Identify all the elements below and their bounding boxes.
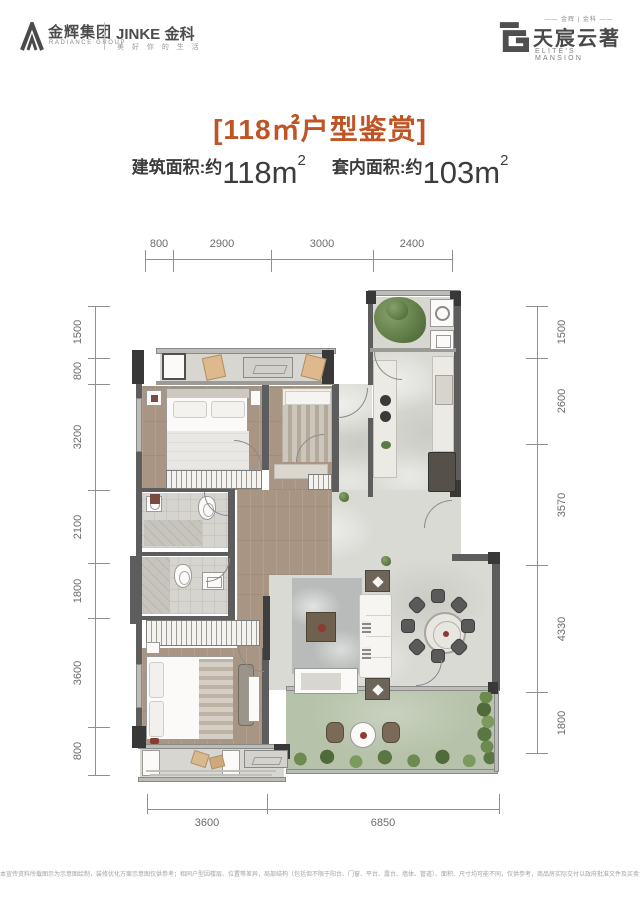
dim-right-2600: 2600 <box>556 389 568 413</box>
dim-left-3600: 3600 <box>72 661 84 685</box>
shower-area <box>144 520 202 546</box>
wall <box>130 556 136 624</box>
side-table <box>365 570 390 592</box>
column <box>132 350 144 384</box>
dim-left-1800: 1800 <box>72 579 84 603</box>
wardrobe <box>308 474 332 490</box>
area-line: 建筑面积:约118m2套内面积:约103m2 <box>0 152 640 191</box>
page-title: [118㎡户型鉴赏] <box>0 108 640 148</box>
plan-notch-mask <box>461 490 521 556</box>
tv <box>263 596 270 660</box>
estate-name-en: ELITE'S MANSION <box>535 48 625 62</box>
hallway-floor <box>237 490 332 575</box>
wall <box>262 384 269 470</box>
poster: 金辉集团 RADIANCE GROUP JINKE 金科 美 好 你 的 生 活… <box>0 0 640 920</box>
dim-top-3000: 3000 <box>310 238 334 250</box>
step-line <box>146 770 276 772</box>
kitchen-counter-right <box>432 356 454 452</box>
shower-area <box>142 557 170 614</box>
nightstand <box>250 390 261 406</box>
jinke-logo: JINKE 金科 <box>116 23 195 44</box>
inner-area-value: 103m <box>423 155 501 190</box>
pillow <box>362 621 371 633</box>
side-table <box>365 678 390 700</box>
balcony-table <box>350 722 376 748</box>
nightstand <box>146 642 160 654</box>
master-balcony-door-wall <box>138 744 286 749</box>
dim-right-1500: 1500 <box>556 320 568 344</box>
sofa <box>359 594 392 678</box>
radiance-name-cn: 金辉集团 <box>48 21 112 42</box>
pillow <box>173 401 207 418</box>
wall <box>492 561 500 691</box>
wardrobe <box>166 470 262 489</box>
slippers <box>150 738 159 744</box>
jinke-name-en: JINKE <box>116 26 160 43</box>
balcony-chair <box>326 722 344 743</box>
built-area-label: 建筑面积:约 <box>132 158 223 177</box>
estate-name-cn: 天宸云著 <box>533 22 621 51</box>
dim-left-800a: 800 <box>72 362 84 380</box>
dining-chair <box>431 589 445 603</box>
balcony-hedge-side <box>476 692 496 754</box>
column <box>488 552 500 564</box>
stove-burner <box>380 395 391 406</box>
dim-right-1800: 1800 <box>556 711 568 735</box>
washer-door-icon <box>435 306 450 321</box>
header-left: 金辉集团 RADIANCE GROUP JINKE 金科 美 好 你 的 生 活 <box>20 20 320 60</box>
plant <box>386 300 408 320</box>
balcony-plaque <box>244 750 288 768</box>
washing-machine <box>430 299 454 327</box>
dim-right-4330: 4330 <box>556 617 568 641</box>
window <box>136 664 142 708</box>
daybed <box>294 668 358 694</box>
plant <box>339 492 349 502</box>
dim-top-800: 800 <box>150 238 168 250</box>
pillow <box>211 401 245 418</box>
pillow <box>149 662 164 698</box>
plant <box>381 556 391 566</box>
blanket <box>199 659 233 739</box>
nightstand <box>146 390 162 406</box>
dining-chair <box>401 619 415 633</box>
dim-left-2100: 2100 <box>72 515 84 539</box>
dresser <box>248 676 260 722</box>
jinke-name-cn: 金科 <box>165 26 195 43</box>
master-balcony-rail <box>138 777 286 782</box>
dim-top-2900: 2900 <box>210 238 234 250</box>
dining-chair <box>461 619 475 633</box>
dim-bottom-3600: 3600 <box>195 817 219 829</box>
built-area-sup: 2 <box>298 152 306 169</box>
header-right: —— 金辉 | 金科 —— 天宸云著 ELITE'S MANSION <box>495 12 625 60</box>
kitchen-sink <box>435 375 453 405</box>
radiance-logo-icon <box>20 22 44 52</box>
estate-logo-icon <box>497 20 529 52</box>
decor-box <box>150 494 160 504</box>
step-line <box>150 774 272 776</box>
flower-decor <box>318 624 326 632</box>
dim-left-3200: 3200 <box>72 425 84 449</box>
column <box>366 291 376 304</box>
master-wardrobe <box>146 620 260 646</box>
dim-bottom-6850: 6850 <box>371 817 395 829</box>
column <box>132 726 146 748</box>
pillow <box>362 647 371 659</box>
window <box>136 398 142 452</box>
pillow <box>149 701 164 737</box>
logo-divider <box>104 22 105 50</box>
interior-wall <box>156 381 334 385</box>
built-area-value: 118m <box>222 155 297 190</box>
master-bed <box>146 656 234 740</box>
inner-area-label: 套内面积:约 <box>332 158 423 177</box>
fridge <box>428 452 456 492</box>
dim-left-800b: 800 <box>72 742 84 760</box>
balcony-chair <box>382 722 400 743</box>
utility-window-wall <box>368 290 460 296</box>
inner-area-sup: 2 <box>500 152 508 169</box>
toilet <box>174 564 192 588</box>
jinke-slogan: 美 好 你 的 生 活 <box>117 42 202 52</box>
wall <box>136 552 235 556</box>
dim-top-2400: 2400 <box>400 238 424 250</box>
radiance-name-en: RADIANCE GROUP <box>49 40 126 46</box>
dim-left-1500: 1500 <box>72 320 84 344</box>
disclaimer-text: 本宣传资料所载图示为示意图绘制，装修优化方案示意图仅供参考；相同户型因楼层、位置… <box>0 869 640 878</box>
pillow <box>285 391 331 405</box>
bay-plaque <box>243 357 293 378</box>
balcony-hedge <box>288 748 494 770</box>
stove-burner <box>380 411 391 422</box>
utility-sink <box>430 330 454 350</box>
ac-platform <box>162 353 186 380</box>
coffee-table <box>306 612 336 642</box>
dim-right-3570: 3570 <box>556 493 568 517</box>
balcony-door-panel <box>142 750 160 776</box>
